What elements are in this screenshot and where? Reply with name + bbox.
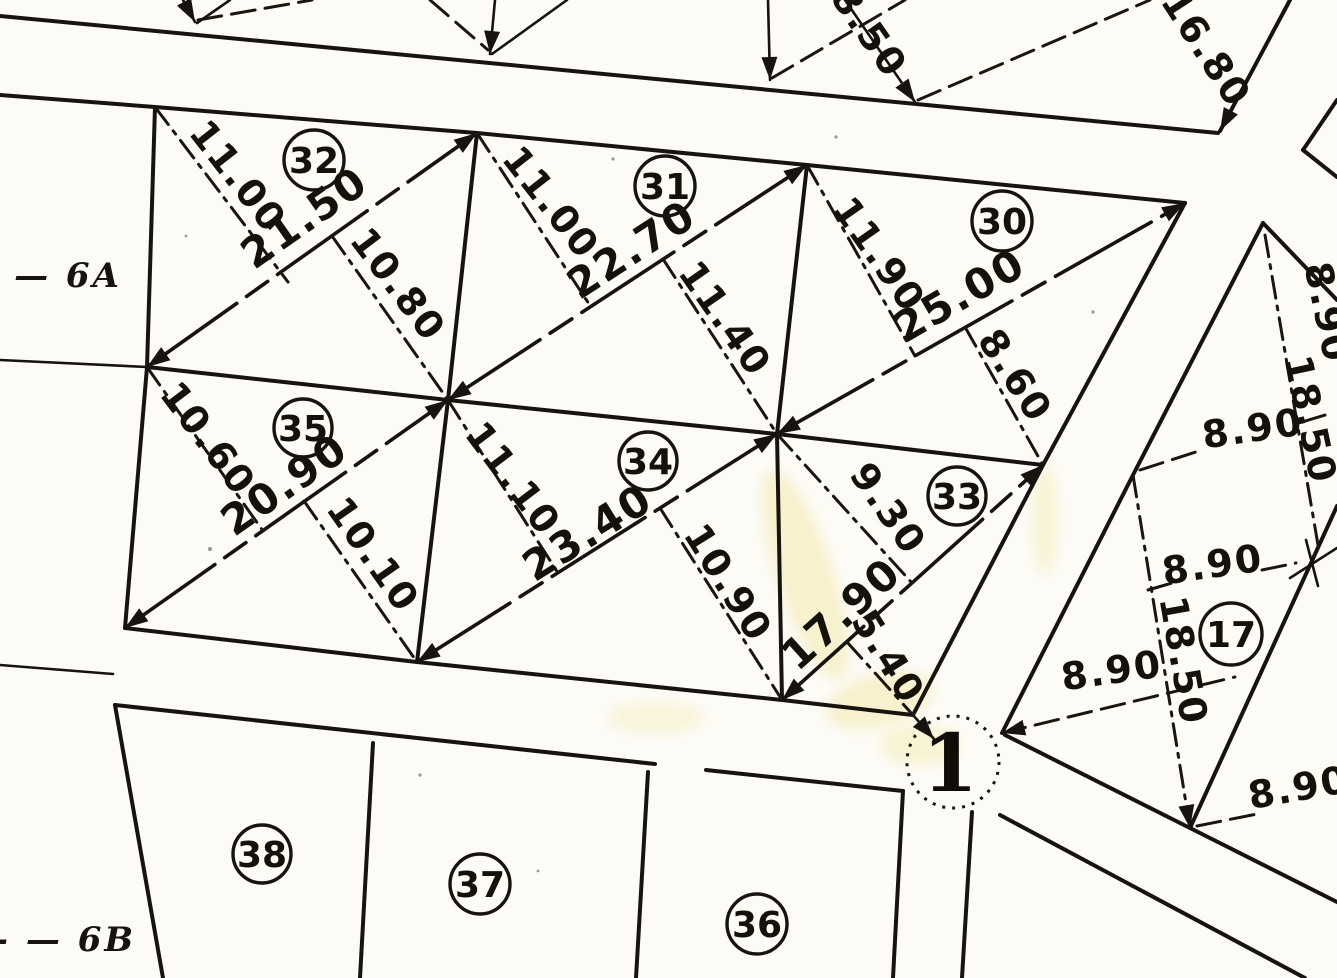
parcel-badge-31: 31 [635,156,695,216]
dim-label: 8.90 [1295,258,1337,367]
road-top-edge [0,16,1218,133]
parcel-number: 31 [640,167,690,208]
plat-drawing: 11.00 21.50 10.80 11.00 22.70 11.40 11.9… [0,0,1337,978]
south-road-right-edge [962,812,972,978]
divider-32-31 [448,133,477,400]
margin-note-6b: - — 6B [0,920,136,960]
dim-label: 8.60 [969,321,1061,430]
neighbor-line-left [0,665,113,674]
top-lot-line [490,0,495,54]
divider-31-30 [777,165,807,434]
parcel-number: 34 [623,442,673,483]
dash-tick [1140,450,1202,470]
parcel-badge-34: 34 [619,432,677,490]
divider-35-34 [417,400,448,662]
parcel-badge-30: 30 [972,191,1032,251]
dash-tick [1262,563,1296,570]
dim-label: 10.10 [318,489,429,621]
parcel-number: 17 [1206,615,1256,656]
parcel-badge-35: 35 [274,399,332,457]
dim-label: 10.90 [675,516,781,650]
parcel-number: 30 [977,202,1027,243]
upper-right-road-edge2 [1303,100,1337,150]
dim-label: 16.80 [1152,0,1260,115]
dim-label: 8.90 [1058,642,1165,700]
dim-label: 8.50 [822,0,916,86]
margin-note-6a: — 6A [14,256,122,296]
dim-label: 8.90 [1245,757,1337,818]
divider-37-36 [636,772,648,978]
parcel-badge-36: 36 [727,894,787,954]
parcel-badge-17: 17 [1200,603,1262,665]
left-stub-line [0,360,147,367]
parcel-number: 32 [289,141,339,182]
parcel-number: 38 [237,835,287,876]
dim-label: 11.40 [670,253,781,385]
junction-number: 1 [922,716,978,810]
divider-38-37 [360,743,373,978]
parcel-number: 37 [455,865,505,906]
parcel-number: 36 [732,905,782,946]
bottom-road-lower-edge-b [706,770,903,791]
dim-label: 9.30 [841,454,935,563]
parcel-number: 35 [278,409,328,450]
parcel-badge-33: 33 [928,467,986,525]
parcel-badge-32: 32 [284,130,344,190]
lot36-right-edge [893,791,903,978]
road-bottom-edge-left [0,95,155,107]
parcel-badge-38: 38 [233,825,291,883]
dash-tick [430,0,488,50]
upper-right-road-edge3 [1303,150,1337,177]
top-lot-line [492,0,567,54]
top-lot-line [768,0,770,80]
top-lot-line [183,0,195,22]
dim-label: 8.90 [1159,536,1266,594]
bottom-road-lower-edge-a [115,705,655,764]
plat-scan-page: 11.00 21.50 10.80 11.00 22.70 11.40 11.9… [0,0,1337,978]
parcel-number: 33 [932,477,982,518]
parcel-badge-37: 37 [450,854,510,914]
diagonal-road-upper-edge [1005,735,1337,902]
diagonal-road-lower-edge [1000,815,1305,978]
dash-tick [918,0,1150,100]
